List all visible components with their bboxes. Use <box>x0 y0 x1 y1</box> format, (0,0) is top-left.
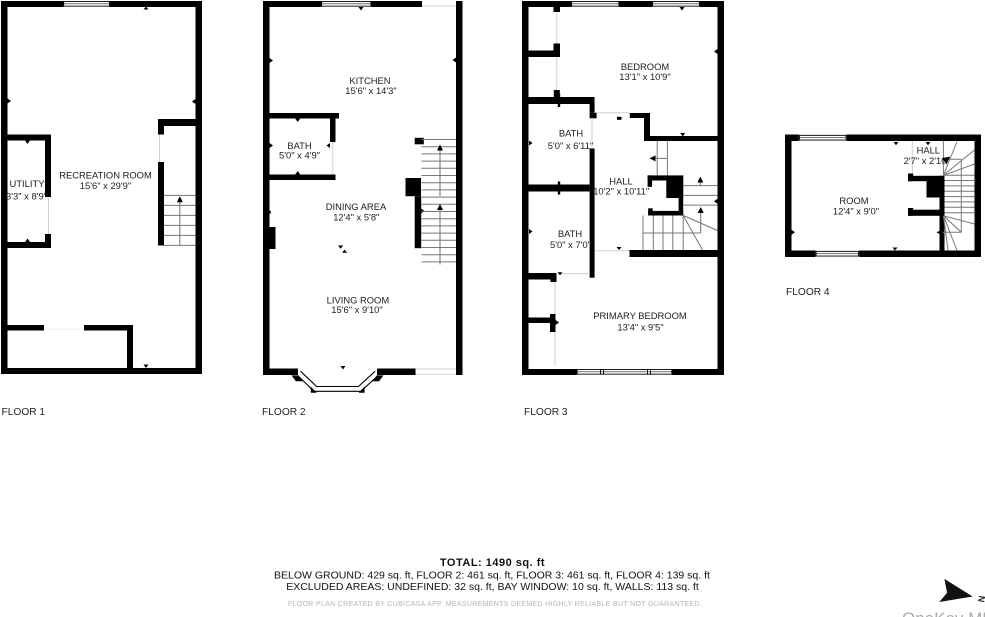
svg-text:3'3" x 8'9": 3'3" x 8'9" <box>6 191 47 202</box>
svg-text:EXCLUDED AREAS: UNDEFINED: 32: EXCLUDED AREAS: UNDEFINED: 32 sq. ft, BA… <box>286 581 699 593</box>
svg-text:TOTAL: 1490 sq. ft: TOTAL: 1490 sq. ft <box>440 557 545 569</box>
svg-text:15'6" x 9'10": 15'6" x 9'10" <box>331 304 382 315</box>
svg-text:DINING AREA: DINING AREA <box>326 201 387 212</box>
svg-text:FLOOR 2: FLOOR 2 <box>262 407 306 418</box>
svg-text:12'4" x 5'8": 12'4" x 5'8" <box>333 212 379 223</box>
svg-text:HALL: HALL <box>917 145 940 156</box>
svg-text:15'6" x 14'3": 15'6" x 14'3" <box>345 85 396 96</box>
svg-text:FLOOR 3: FLOOR 3 <box>524 407 568 418</box>
svg-text:5'0" x 4'9": 5'0" x 4'9" <box>279 150 320 161</box>
svg-text:OneKey MLS: OneKey MLS <box>902 609 985 617</box>
svg-text:5'0" x 6'11": 5'0" x 6'11" <box>548 140 594 151</box>
svg-text:13'4" x 9'5": 13'4" x 9'5" <box>617 322 663 333</box>
svg-text:RECREATION ROOM: RECREATION ROOM <box>59 170 152 181</box>
svg-text:ROOM: ROOM <box>839 195 868 206</box>
svg-text:12'4" x 9'0": 12'4" x 9'0" <box>833 206 879 217</box>
svg-text:FLOOR 1: FLOOR 1 <box>2 407 46 418</box>
svg-text:13'1" x 10'9": 13'1" x 10'9" <box>619 71 670 82</box>
svg-text:2'7" x 2'10": 2'7" x 2'10" <box>904 155 950 166</box>
svg-text:5'0" x 7'0": 5'0" x 7'0" <box>550 239 591 250</box>
svg-text:FLOOR 4: FLOOR 4 <box>786 287 830 298</box>
svg-text:BATH: BATH <box>558 228 582 239</box>
svg-text:BELOW GROUND: 429 sq. ft, FLOO: BELOW GROUND: 429 sq. ft, FLOOR 2: 461 s… <box>274 570 710 582</box>
svg-text:10'2" x 10'11": 10'2" x 10'11" <box>593 186 649 197</box>
svg-text:15'6" x 29'9": 15'6" x 29'9" <box>80 180 131 191</box>
svg-text:FLOOR PLAN CREATED BY CUBICASA: FLOOR PLAN CREATED BY CUBICASA APP. MEAS… <box>288 601 702 608</box>
svg-text:UTILITY: UTILITY <box>10 178 46 189</box>
svg-text:BATH: BATH <box>559 128 583 139</box>
svg-text:PRIMARY BEDROOM: PRIMARY BEDROOM <box>593 310 687 321</box>
